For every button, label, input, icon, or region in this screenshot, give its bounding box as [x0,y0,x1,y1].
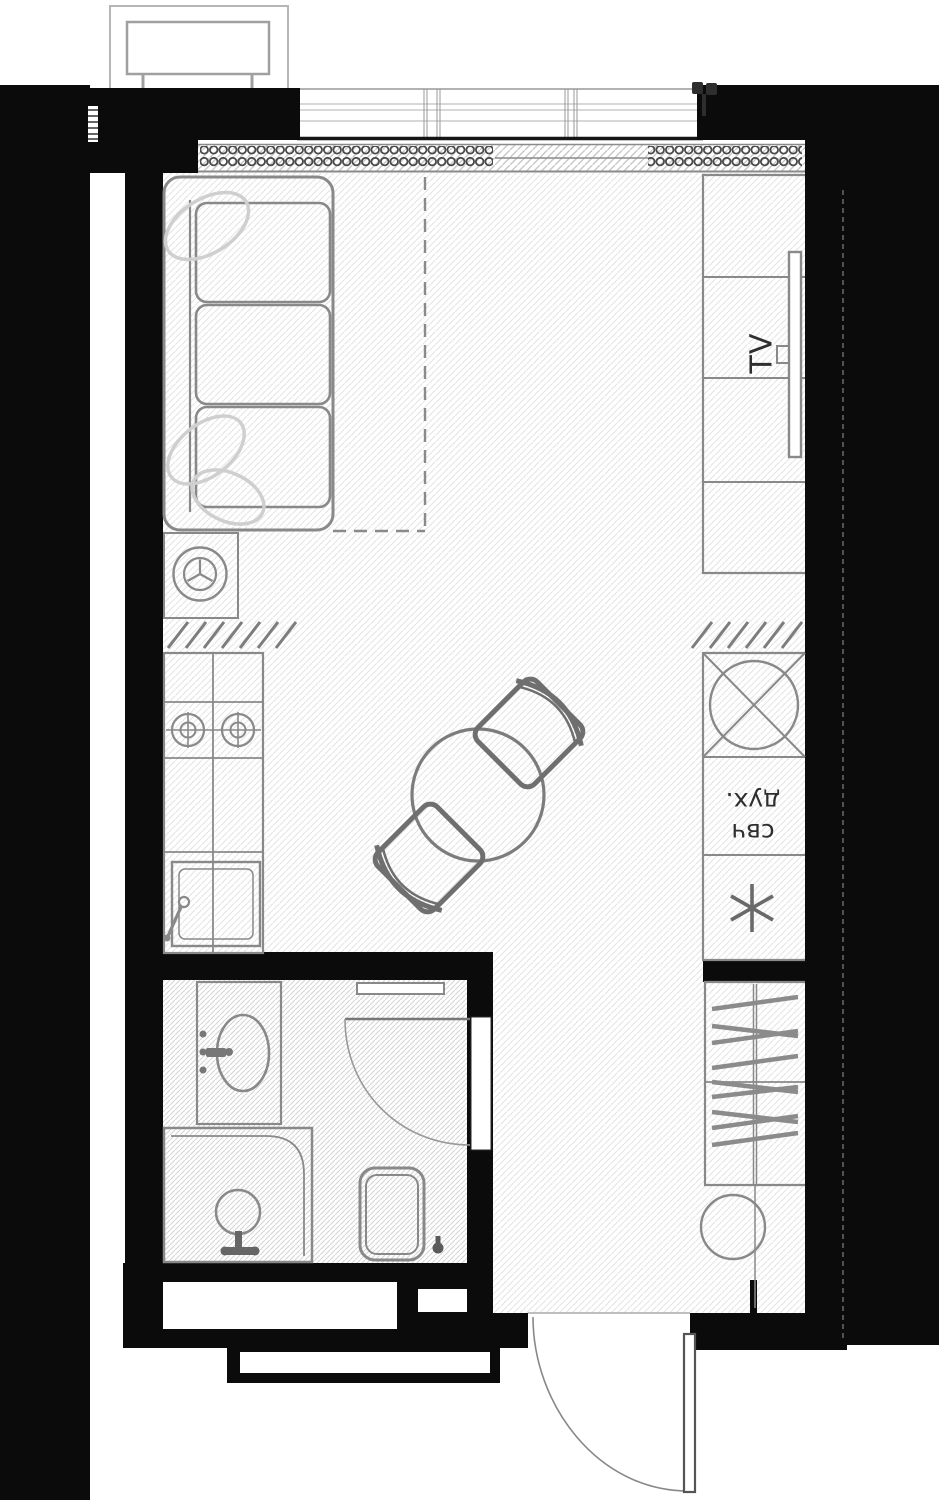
duct-slot-small [418,1289,467,1312]
door-leaf [684,1334,695,1492]
tv-screen [789,252,801,457]
window [297,88,703,140]
wall-left-strip [0,85,90,1500]
wall-window-left-jamb [198,88,300,140]
floor-plan-drawing: TV дух. свч [0,0,939,1500]
wall-right-mass [805,85,939,1345]
insulation-chain [648,146,802,169]
wall-bottom-left-of-door [493,1313,528,1348]
window-glazing [300,88,697,140]
microwave-label: свч [731,818,774,847]
wall-top-left-block [90,88,198,173]
oven-label: дух. [726,787,781,816]
bathroom-floor [163,980,467,1263]
wall-left [125,173,163,1348]
floor-plan-canvas: TV дух. свч [0,0,939,1500]
wall-kitchen-column-stub [703,960,805,982]
wall-bathroom-top [163,952,493,980]
duct-slot [163,1282,397,1329]
wall-bottom-right-of-door [690,1313,847,1350]
balcony-bench [127,22,269,74]
towel-rail [357,983,444,994]
tv-label: TV [745,333,780,375]
entry-step-slot [240,1352,490,1373]
bathroom-door-opening [471,1017,491,1150]
vent-grille [88,106,98,142]
exterior-wall-band [163,144,805,172]
wall-door-pier [750,1280,757,1313]
insulation-chain [200,146,493,169]
